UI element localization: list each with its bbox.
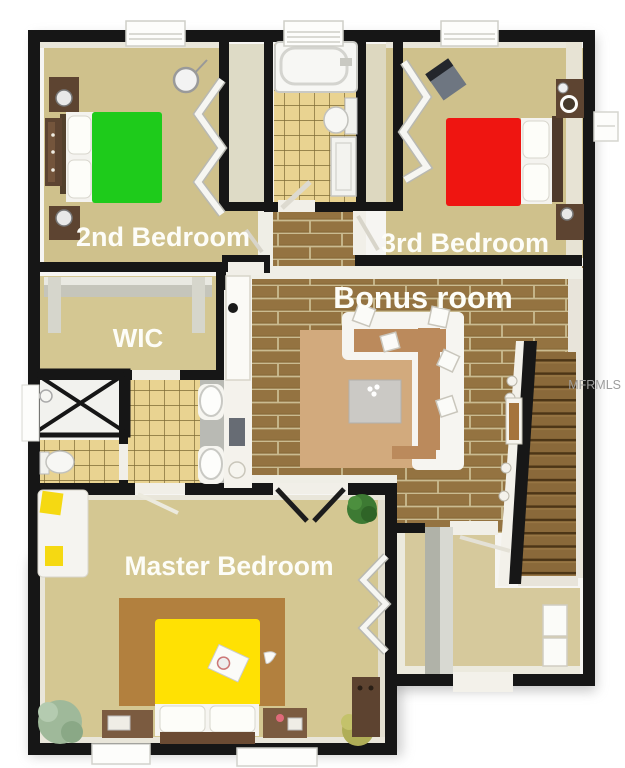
svg-text:WIC: WIC <box>113 323 164 353</box>
svg-text:3rd Bedroom: 3rd Bedroom <box>381 228 549 258</box>
svg-text:2nd Bedroom: 2nd Bedroom <box>76 222 250 252</box>
svg-text:Master Bedroom: Master Bedroom <box>124 551 333 581</box>
svg-text:Bonus room: Bonus room <box>333 281 513 315</box>
svg-text:MFRMLS: MFRMLS <box>568 378 621 392</box>
